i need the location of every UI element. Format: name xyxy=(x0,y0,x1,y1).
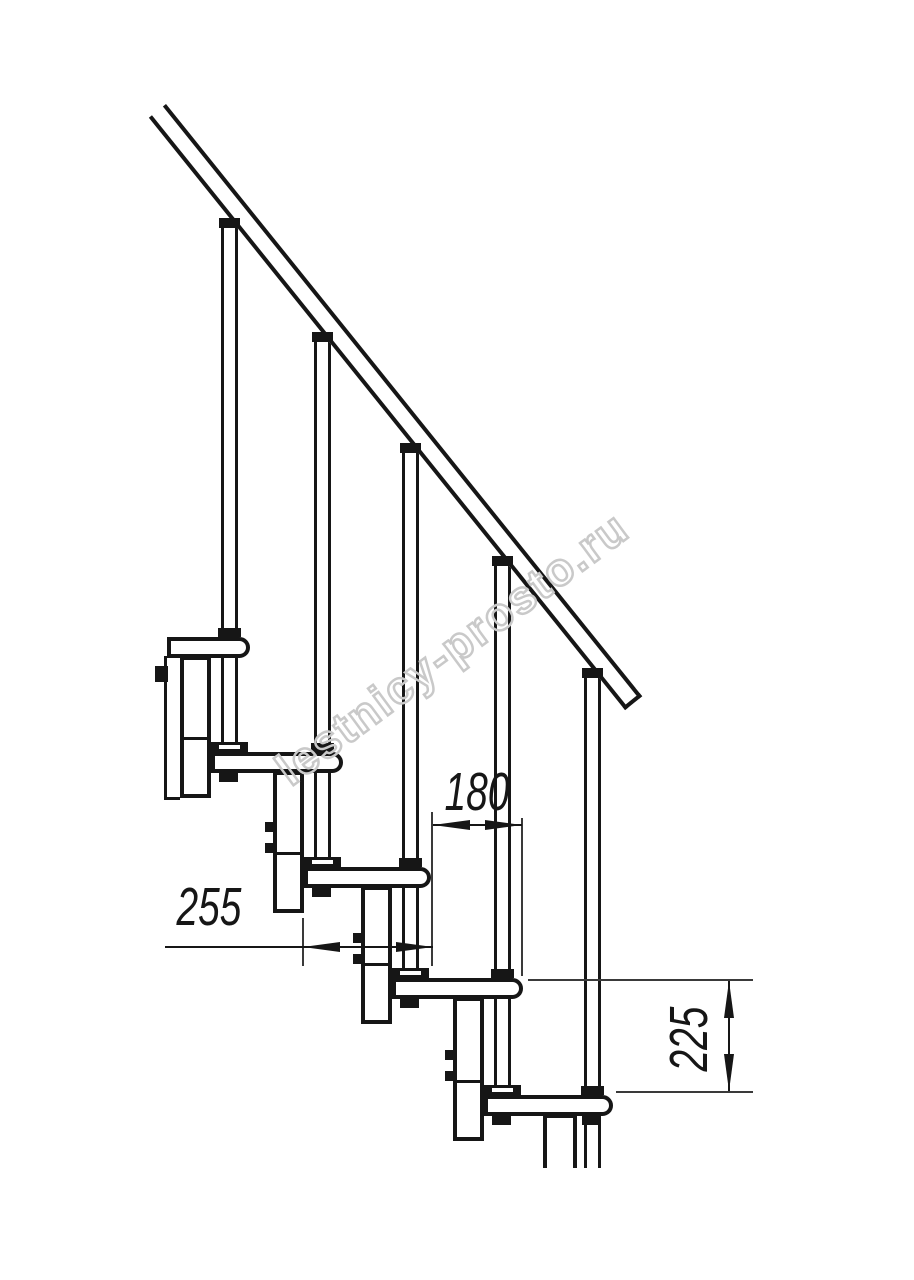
baluster xyxy=(221,224,238,637)
dimension-label-255: 255 xyxy=(168,880,250,934)
extension-line xyxy=(616,1091,753,1093)
support-pipe xyxy=(314,771,331,858)
flange-nub xyxy=(392,968,400,976)
baluster xyxy=(314,338,331,752)
tread-bolt-nut xyxy=(219,773,238,782)
bracket-divider-line xyxy=(180,737,211,740)
flange-nub xyxy=(240,742,248,750)
bracket-bolt xyxy=(353,933,362,943)
tread xyxy=(167,637,250,658)
bracket-divider-line xyxy=(361,963,392,966)
tread-bolt-nut xyxy=(400,999,419,1008)
baluster-rail-cap xyxy=(492,556,513,566)
tread xyxy=(484,1095,613,1116)
dimension-line-255 xyxy=(165,946,433,948)
tread xyxy=(392,978,523,999)
tread-bolt-nut xyxy=(582,1116,601,1125)
baluster-base-bolt xyxy=(399,858,422,867)
support-pipe xyxy=(221,656,238,743)
support-bracket xyxy=(543,1114,577,1168)
tread-bolt-nut xyxy=(492,1116,511,1125)
flange-nub xyxy=(333,857,341,865)
flange-nub xyxy=(304,857,312,865)
tread xyxy=(304,867,431,888)
bracket-divider-line xyxy=(453,1080,484,1083)
tread-bolt-nut xyxy=(155,666,168,682)
flange-nub xyxy=(484,1085,492,1093)
staircase-drawing: 180 255 225 lestnicy-prosto.ru xyxy=(0,0,914,1280)
flange-nub xyxy=(211,742,219,750)
bracket-bolt xyxy=(445,1071,454,1081)
extension-line xyxy=(521,818,523,976)
baluster-base-bolt xyxy=(218,628,241,637)
baluster-rail-cap xyxy=(219,218,240,228)
dimension-arrow-up xyxy=(724,981,734,1018)
bracket-bolt xyxy=(353,954,362,964)
support-bracket xyxy=(453,997,484,1141)
bracket-bolt xyxy=(445,1050,454,1060)
baluster-rail-cap xyxy=(582,668,603,678)
bracket-divider-line xyxy=(273,852,304,855)
flange-nub xyxy=(421,968,429,976)
baluster-rail-cap xyxy=(312,332,333,342)
baluster xyxy=(584,674,601,1095)
bracket-bolt xyxy=(265,843,274,853)
bracket-bolt xyxy=(265,822,274,832)
extension-line xyxy=(528,979,753,981)
dimension-arrow-right xyxy=(396,942,433,952)
dimension-label-225: 225 xyxy=(662,998,716,1080)
baluster-base-bolt xyxy=(491,969,514,978)
dimension-arrow-down xyxy=(724,1054,734,1091)
tread-bolt-nut xyxy=(312,888,331,897)
support-pipe xyxy=(402,886,419,969)
support-bracket xyxy=(361,886,392,1024)
support-bracket xyxy=(180,656,211,798)
flange-nub xyxy=(513,1085,521,1093)
dimension-label-180: 180 xyxy=(436,765,518,819)
dimension-arrow-left xyxy=(303,942,340,952)
baluster-base-bolt xyxy=(581,1086,604,1095)
support-pipe xyxy=(494,997,511,1086)
baluster-rail-cap xyxy=(400,443,421,453)
